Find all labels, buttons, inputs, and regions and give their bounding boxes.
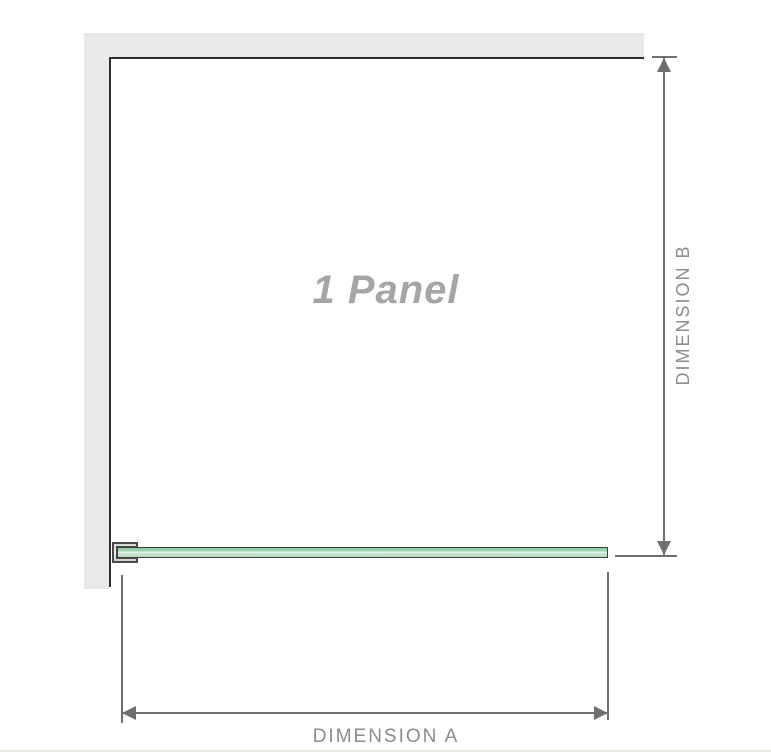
dimension-b-arrow-down-icon [657,541,671,555]
dimension-a-arrow-left-icon [122,706,136,720]
shower-panel-diagram: 1 Panel DIMENSION B DIMENSION A [0,0,771,755]
wall-edge-left-line [109,57,111,587]
bottom-divider-line [0,750,771,752]
glass-panel-plan [117,547,608,558]
dimension-b-arrow-up-icon [657,58,671,72]
dimension-a-arrow-right-icon [594,706,608,720]
dimension-b-label: DIMENSION B [673,230,693,400]
dimension-a-line [122,712,608,714]
dimension-b-bottom-tick [615,555,677,557]
dimension-b-line [663,57,665,556]
wall-edge-top-line [109,57,644,59]
dimension-a-left-extension [121,575,123,723]
wall-top-strip [84,33,644,57]
dimension-a-label: DIMENSION A [275,726,497,748]
wall-left-strip [84,33,109,589]
panel-count-label: 1 Panel [276,268,496,313]
dimension-a-right-extension [607,572,609,720]
